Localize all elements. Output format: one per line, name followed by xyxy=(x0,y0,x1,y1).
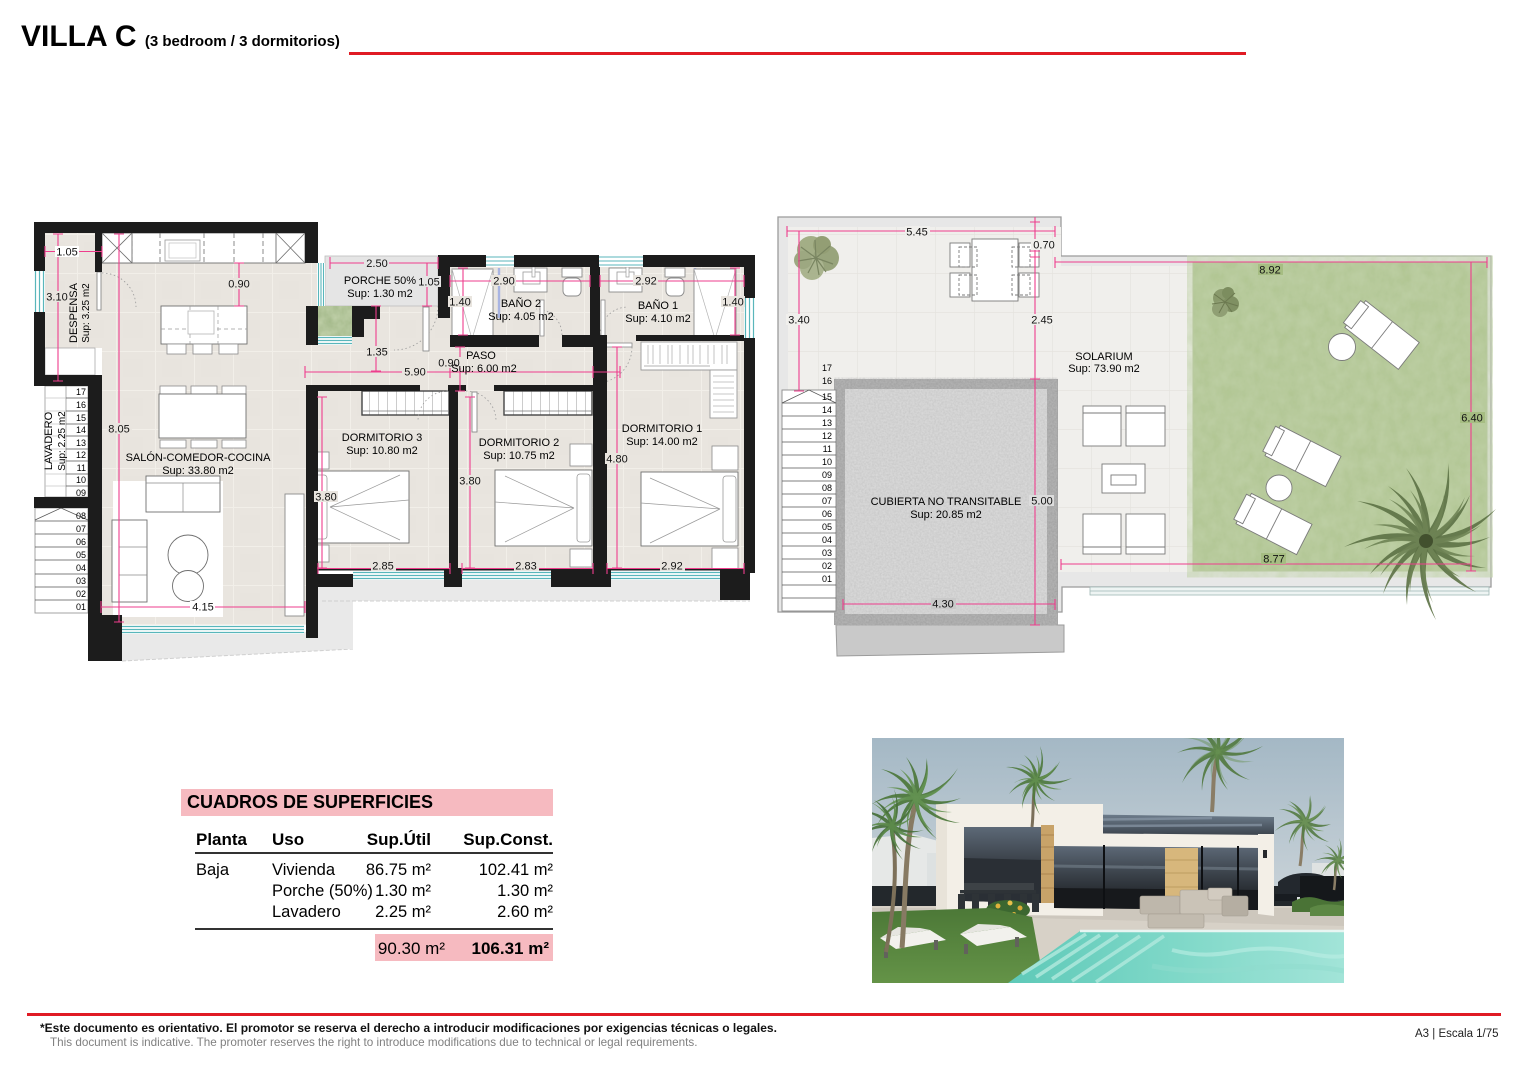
svg-text:2.85: 2.85 xyxy=(372,561,393,573)
svg-text:17: 17 xyxy=(822,363,832,373)
svg-text:04: 04 xyxy=(822,535,832,545)
svg-text:DORMITORIO 1: DORMITORIO 1 xyxy=(622,423,702,435)
svg-text:SOLARIUM: SOLARIUM xyxy=(1075,351,1132,363)
svg-text:Sup: 14.00 m2: Sup: 14.00 m2 xyxy=(626,436,698,448)
svg-text:DORMITORIO 3: DORMITORIO 3 xyxy=(342,432,422,444)
svg-text:11: 11 xyxy=(77,463,86,473)
svg-text:8.05: 8.05 xyxy=(108,424,129,436)
svg-text:DORMITORIO 2: DORMITORIO 2 xyxy=(479,437,559,449)
svg-text:Sup: 20.85 m2: Sup: 20.85 m2 xyxy=(910,509,982,521)
svg-text:06: 06 xyxy=(76,537,86,547)
svg-text:PASO: PASO xyxy=(466,350,496,362)
svg-text:8.77: 8.77 xyxy=(1263,554,1284,566)
svg-text:05: 05 xyxy=(76,550,86,560)
svg-text:3.80: 3.80 xyxy=(315,492,336,504)
svg-text:12: 12 xyxy=(76,450,86,460)
svg-text:10: 10 xyxy=(76,475,86,485)
svg-text:03: 03 xyxy=(822,548,832,558)
svg-text:Sup: 4.10 m2: Sup: 4.10 m2 xyxy=(625,313,690,325)
svg-text:3.40: 3.40 xyxy=(788,315,809,327)
svg-text:06: 06 xyxy=(822,509,832,519)
svg-text:07: 07 xyxy=(822,496,832,506)
svg-text:08: 08 xyxy=(822,483,832,493)
svg-text:Sup: 33.80 m2: Sup: 33.80 m2 xyxy=(162,465,234,477)
svg-text:4.30: 4.30 xyxy=(932,599,953,611)
svg-text:16: 16 xyxy=(76,400,86,410)
svg-text:01: 01 xyxy=(76,602,86,612)
svg-text:07: 07 xyxy=(76,524,86,534)
svg-text:BAÑO 2: BAÑO 2 xyxy=(501,297,541,310)
svg-text:8.92: 8.92 xyxy=(1259,265,1280,277)
svg-text:16: 16 xyxy=(822,376,832,386)
svg-text:DESPENSA: DESPENSA xyxy=(68,282,80,343)
svg-text:15: 15 xyxy=(822,392,832,402)
svg-text:13: 13 xyxy=(822,418,832,428)
svg-text:1.35: 1.35 xyxy=(366,347,387,359)
svg-text:15: 15 xyxy=(76,413,86,423)
svg-text:05: 05 xyxy=(822,522,832,532)
svg-text:CUBIERTA NO TRANSITABLE: CUBIERTA NO TRANSITABLE xyxy=(871,496,1022,508)
svg-text:0.90: 0.90 xyxy=(228,279,249,291)
svg-text:3.10: 3.10 xyxy=(46,292,67,304)
svg-text:Sup: 10.80 m2: Sup: 10.80 m2 xyxy=(346,445,418,457)
svg-text:Sup: 3.25 m2: Sup: 3.25 m2 xyxy=(81,283,92,343)
svg-text:01: 01 xyxy=(822,574,832,584)
svg-text:2.50: 2.50 xyxy=(366,258,387,270)
svg-text:5.45: 5.45 xyxy=(906,227,927,239)
svg-text:1.05: 1.05 xyxy=(418,277,439,289)
svg-text:2.92: 2.92 xyxy=(661,561,682,573)
svg-text:0.70: 0.70 xyxy=(1033,240,1054,252)
svg-text:1.40: 1.40 xyxy=(722,297,743,309)
svg-text:11: 11 xyxy=(823,444,832,454)
svg-text:02: 02 xyxy=(76,589,86,599)
svg-text:14: 14 xyxy=(822,405,832,415)
svg-text:Sup: 73.90 m2: Sup: 73.90 m2 xyxy=(1068,363,1140,375)
svg-text:04: 04 xyxy=(76,563,86,573)
svg-text:5.90: 5.90 xyxy=(404,367,425,379)
svg-text:13: 13 xyxy=(76,438,86,448)
svg-text:1.40: 1.40 xyxy=(449,297,470,309)
svg-text:17: 17 xyxy=(76,387,86,397)
svg-text:4.80: 4.80 xyxy=(606,454,627,466)
svg-text:2.45: 2.45 xyxy=(1031,315,1052,327)
svg-text:LAVADERO: LAVADERO xyxy=(43,411,55,470)
svg-text:2.90: 2.90 xyxy=(493,276,514,288)
svg-text:2.92: 2.92 xyxy=(635,276,656,288)
svg-text:BAÑO 1: BAÑO 1 xyxy=(638,299,678,312)
svg-text:3.80: 3.80 xyxy=(459,476,480,488)
svg-text:2.83: 2.83 xyxy=(515,561,536,573)
svg-text:09: 09 xyxy=(76,488,86,498)
svg-text:Sup: 4.05 m2: Sup: 4.05 m2 xyxy=(488,311,553,323)
svg-text:Sup: 6.00 m2: Sup: 6.00 m2 xyxy=(451,363,516,375)
svg-text:6.40: 6.40 xyxy=(1461,413,1482,425)
svg-text:02: 02 xyxy=(822,561,832,571)
svg-text:Sup: 1.30 m2: Sup: 1.30 m2 xyxy=(347,288,412,300)
svg-text:PORCHE 50%: PORCHE 50% xyxy=(344,275,416,287)
svg-text:10: 10 xyxy=(822,457,832,467)
svg-text:1.05: 1.05 xyxy=(56,247,77,259)
svg-text:4.15: 4.15 xyxy=(192,602,213,614)
svg-text:12: 12 xyxy=(822,431,832,441)
svg-text:Sup: 2.25 m2: Sup: 2.25 m2 xyxy=(57,411,68,471)
svg-text:14: 14 xyxy=(76,425,86,435)
svg-text:SALÓN-COMEDOR-COCINA: SALÓN-COMEDOR-COCINA xyxy=(126,451,272,464)
svg-text:03: 03 xyxy=(76,576,86,586)
svg-text:5.00: 5.00 xyxy=(1031,496,1052,508)
svg-text:08: 08 xyxy=(76,511,86,521)
svg-text:09: 09 xyxy=(822,470,832,480)
svg-text:Sup: 10.75 m2: Sup: 10.75 m2 xyxy=(483,450,555,462)
